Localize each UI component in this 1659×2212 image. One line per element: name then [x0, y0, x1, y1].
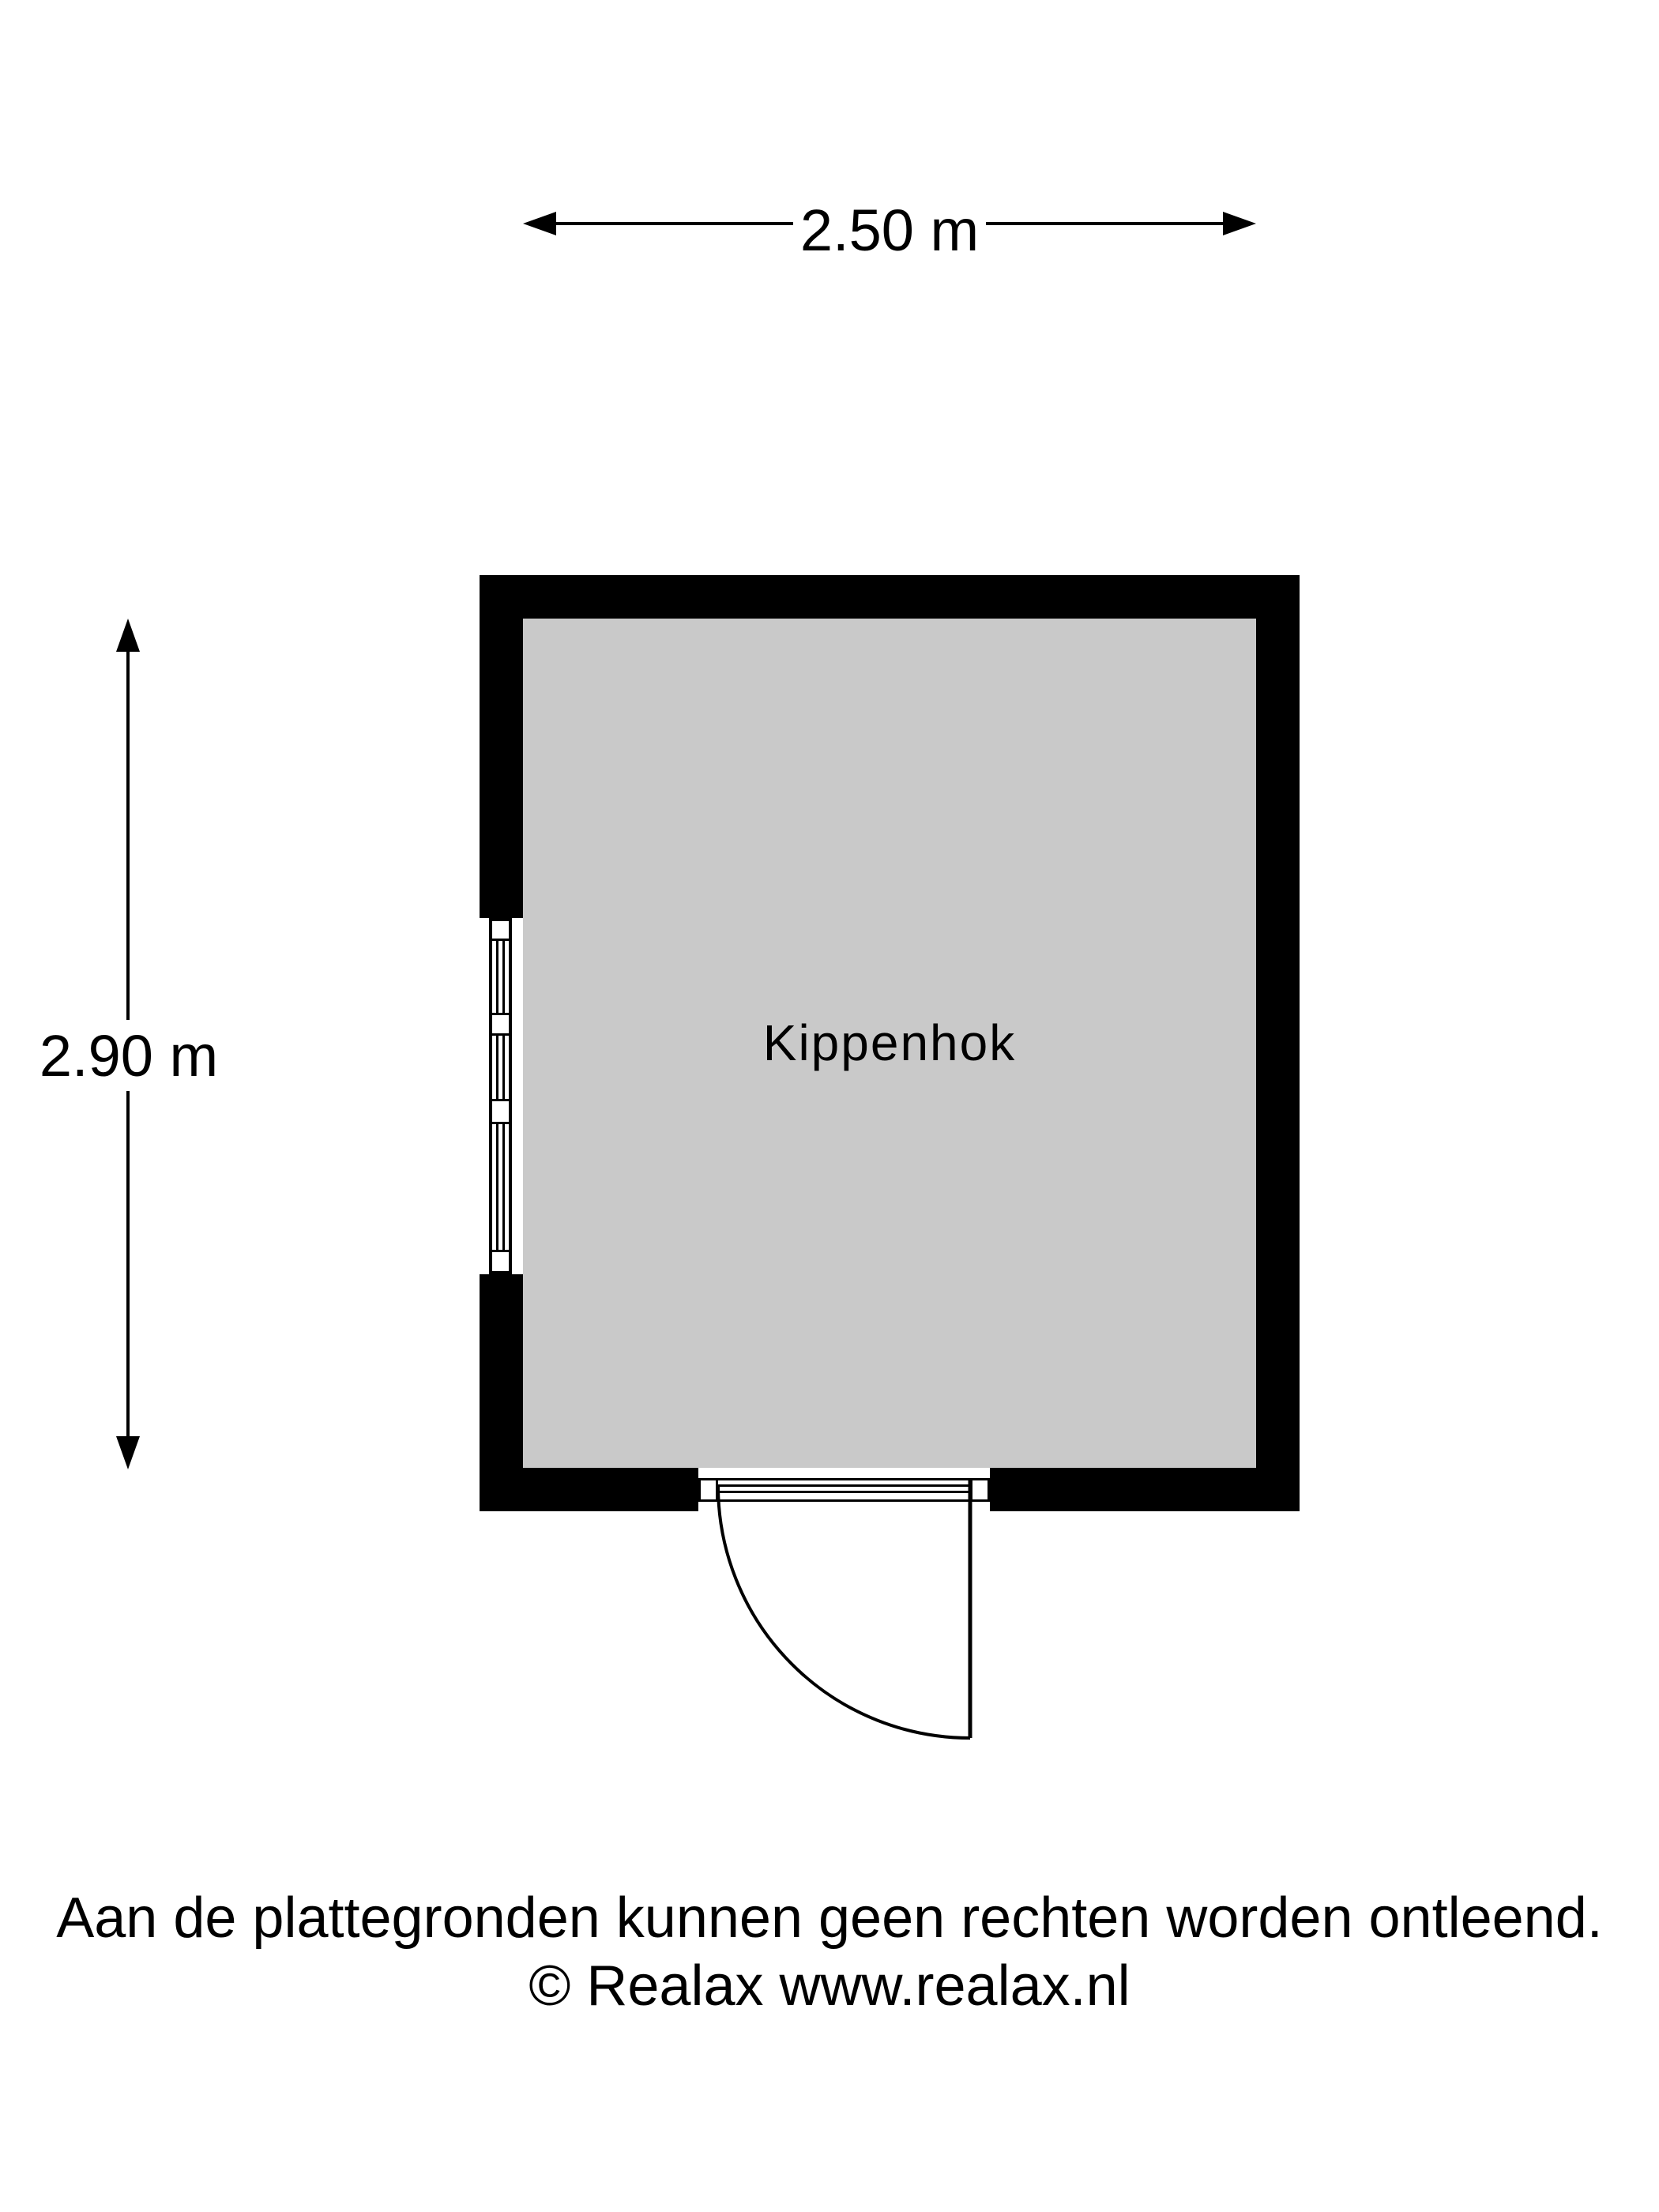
floorplan-page: { "dimension_labels": { "width": "2.50 m…: [0, 0, 1659, 2212]
wall-bottom-left: [480, 1468, 698, 1511]
door-threshold-line: [718, 1484, 970, 1487]
door-threshold: [718, 1478, 970, 1502]
height-dimension-label: 2.90 m: [32, 1020, 225, 1091]
window-spacer: [492, 1015, 509, 1036]
disclaimer-text: Aan de plattegronden kunnen geen rechten…: [0, 1890, 1659, 1947]
wall-left-upper: [480, 575, 523, 918]
window-sill-bottom: [492, 1252, 509, 1271]
arrow-up-icon: [116, 619, 140, 652]
arrow-right-icon: [1223, 212, 1256, 235]
window-mullion-icon: [496, 1124, 498, 1250]
window-mullion-icon: [496, 941, 498, 1013]
room-name-label: Kippenhok: [523, 1003, 1256, 1082]
door-swing-arc: [718, 1486, 970, 1738]
window-mullion-icon: [496, 1036, 498, 1099]
window-pane: [492, 941, 509, 1015]
arrow-left-icon: [523, 212, 556, 235]
door-threshold-line: [718, 1491, 970, 1493]
wall-right: [1256, 575, 1300, 1511]
window-mullion-icon: [502, 941, 505, 1013]
wall-top: [480, 575, 1300, 619]
window-sill-top: [492, 921, 509, 941]
copyright-text: © Realax www.realax.nl: [0, 1958, 1659, 2014]
window-spacer: [492, 1101, 509, 1124]
window-mullion-icon: [502, 1124, 505, 1250]
door-post-right: [970, 1478, 990, 1502]
wall-bottom-right: [990, 1468, 1300, 1511]
width-dimension-label: 2.50 m: [793, 194, 986, 265]
window-pane: [492, 1036, 509, 1101]
window-pane: [492, 1124, 509, 1252]
window-mullion-icon: [502, 1036, 505, 1099]
arrow-down-icon: [116, 1436, 140, 1469]
window: [489, 918, 512, 1274]
floorplan-canvas: 2.50 m 2.90 m: [0, 0, 1659, 2212]
door-post-left: [698, 1478, 718, 1502]
